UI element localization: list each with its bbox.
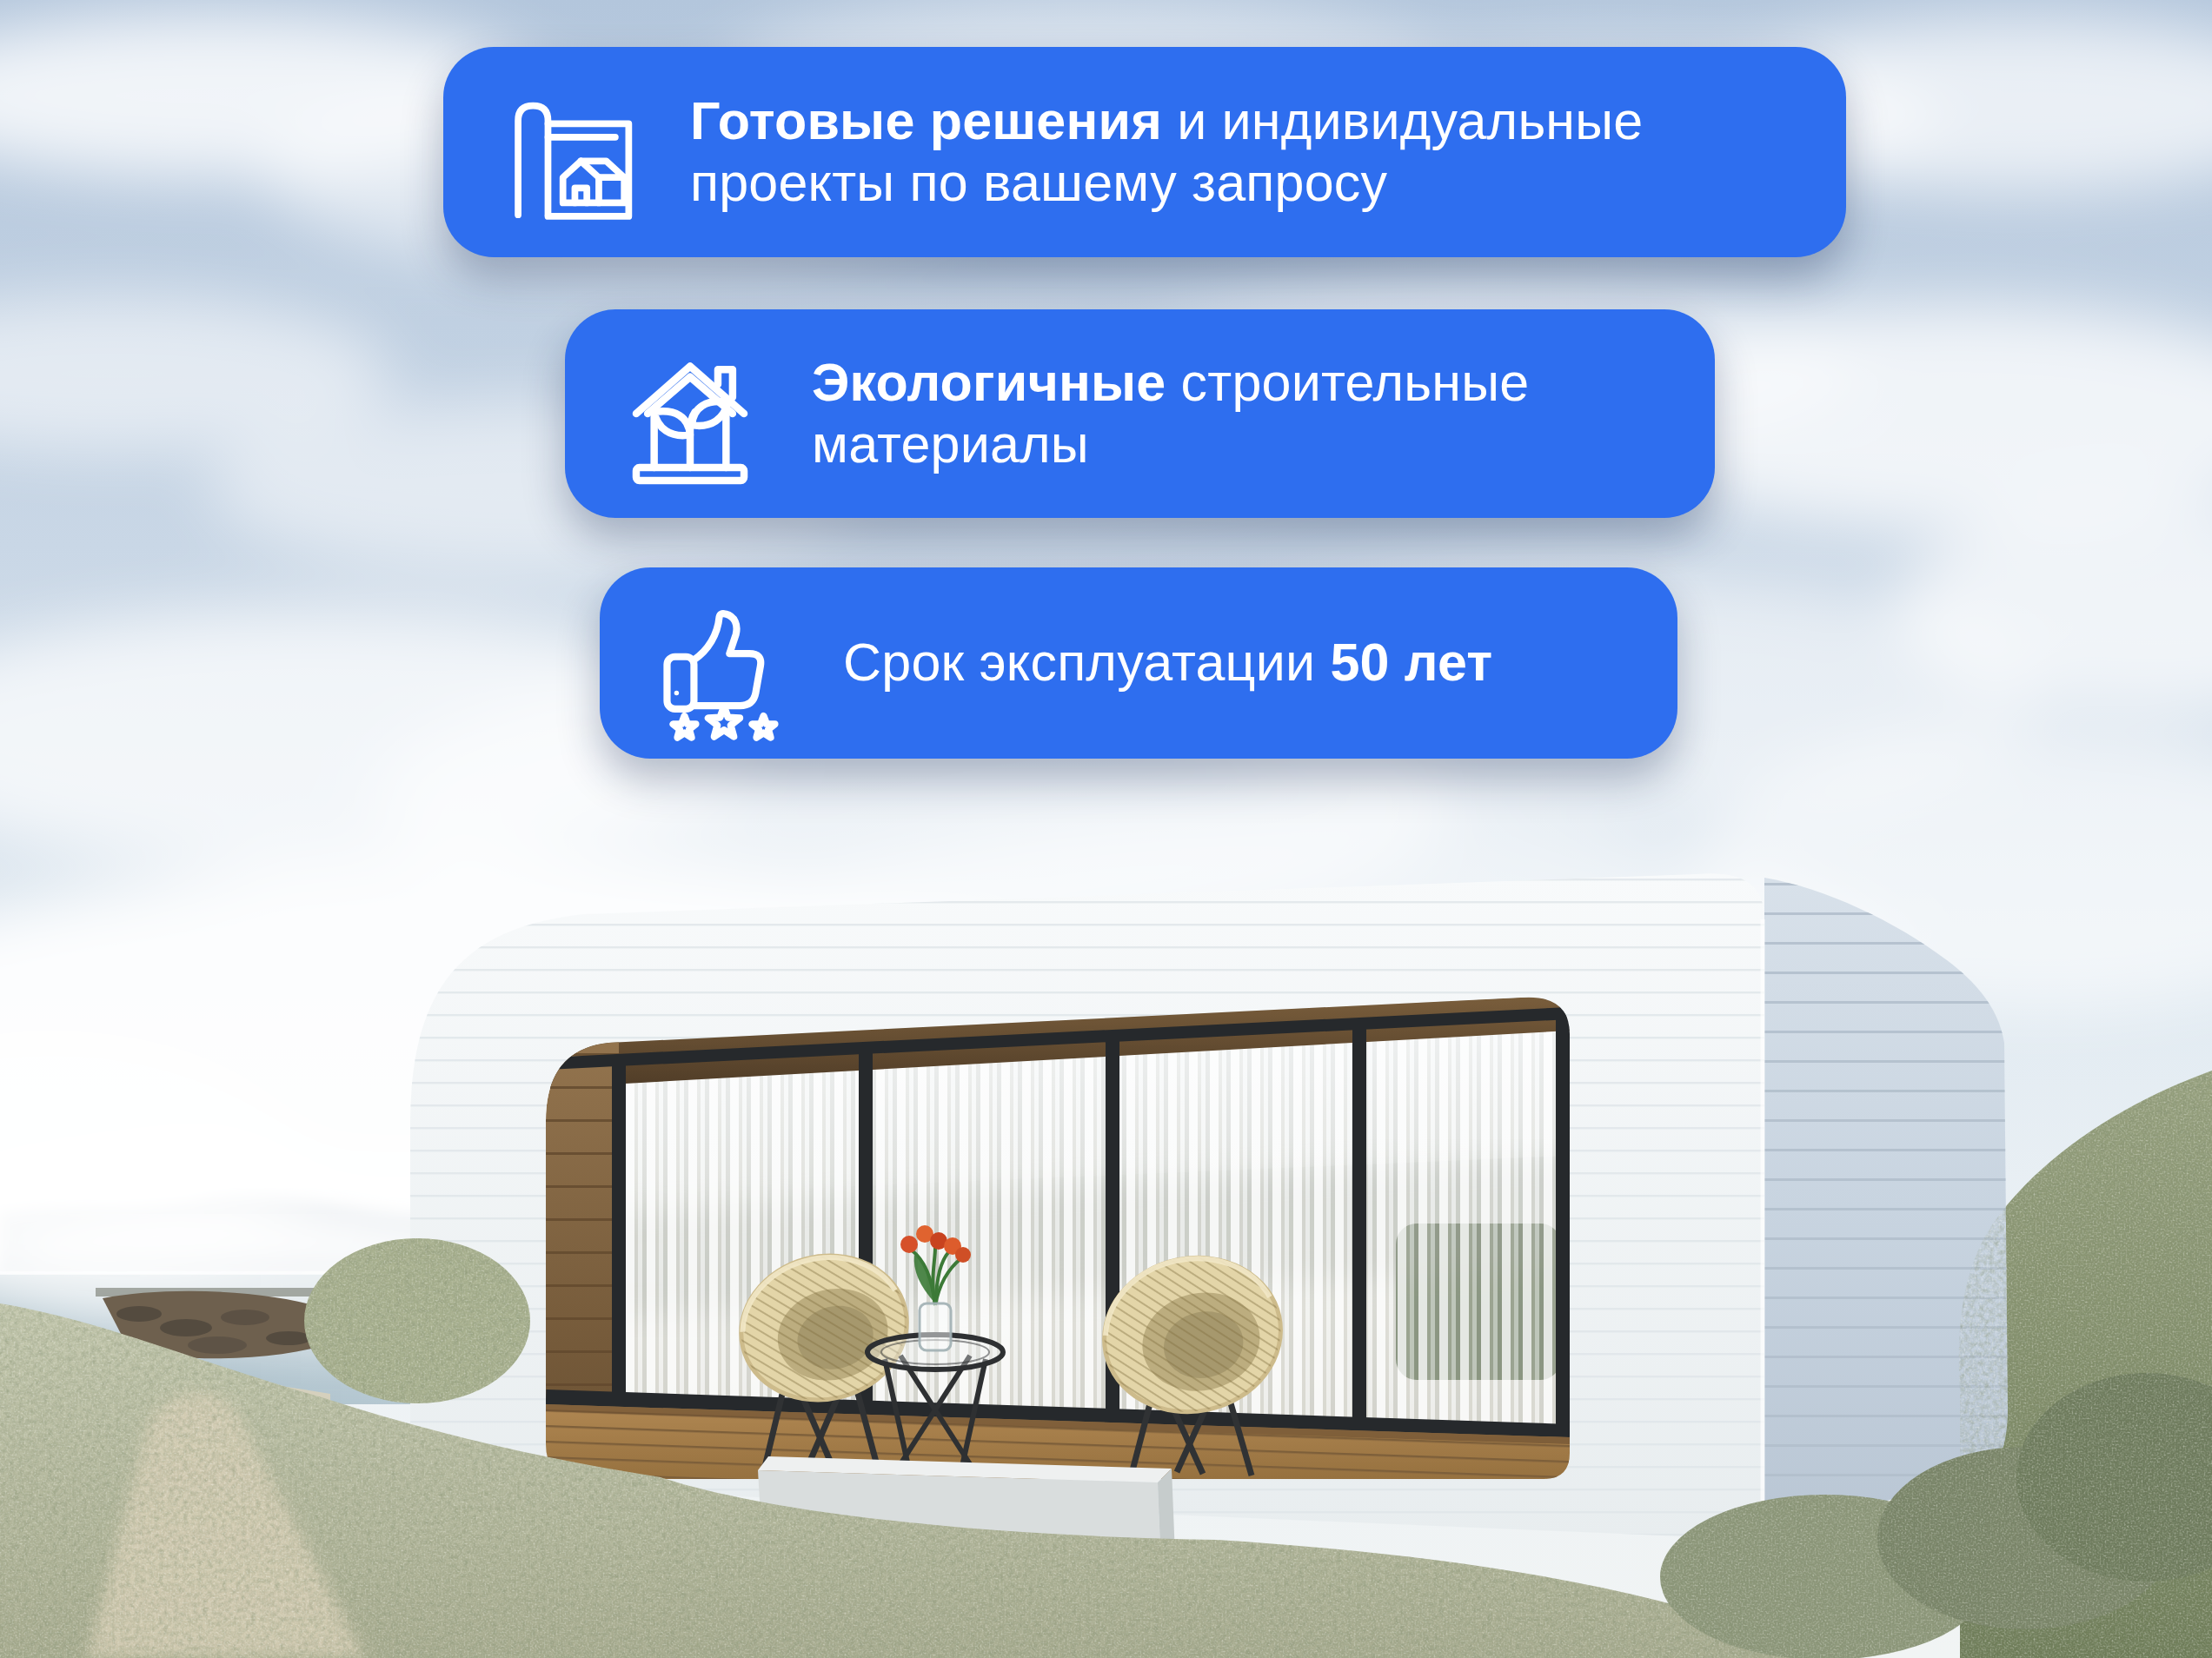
feature-badge-eco-materials: Экологичные строительные материалы xyxy=(565,309,1715,518)
blueprint-house-icon xyxy=(497,77,647,227)
badge-text: Срок эксплуатации 50 лет xyxy=(843,632,1492,693)
promo-banner: Готовые решения и индивидуальные проекты… xyxy=(0,0,2212,1658)
thumbs-up-stars-icon xyxy=(645,580,803,746)
feature-badge-service-life: Срок эксплуатации 50 лет xyxy=(600,567,1677,759)
house xyxy=(400,860,2016,1555)
eco-house-icon xyxy=(608,332,772,495)
badge-text: Экологичные строительные материалы xyxy=(812,352,1594,476)
badge-text: Готовые решения и индивидуальные проекты… xyxy=(690,90,1724,215)
feature-badge-ready-solutions: Готовые решения и индивидуальные проекты… xyxy=(443,47,1846,257)
